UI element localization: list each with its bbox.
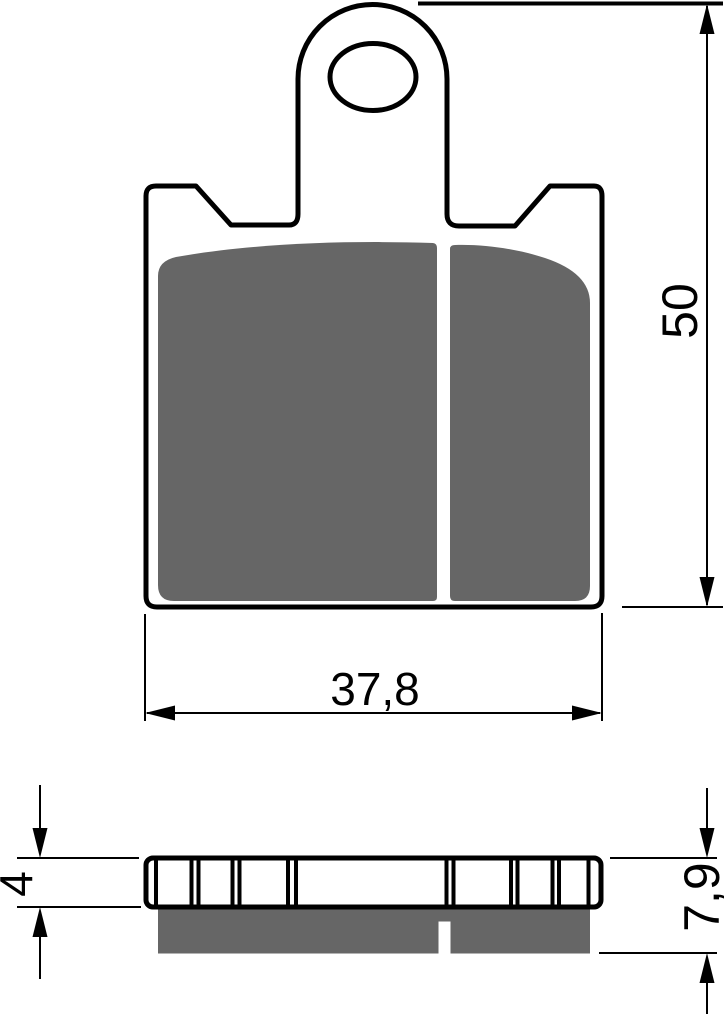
friction-pad-left — [158, 242, 437, 601]
side-friction-slot — [439, 922, 451, 955]
dimension-plate-thickness: 4 — [0, 785, 141, 979]
arrowhead-up — [33, 907, 48, 937]
dimension-label-height: 50 — [652, 283, 708, 339]
side-friction — [158, 909, 590, 954]
dimension-total-thickness: 7,9 — [599, 788, 724, 1014]
dimension-label-total-thickness: 7,9 — [674, 862, 724, 932]
arrowhead-up — [700, 953, 715, 983]
arrowhead-down — [33, 828, 48, 858]
arrowhead-down — [700, 828, 715, 858]
friction-pad-right — [450, 245, 590, 601]
side-view — [146, 858, 601, 954]
dimension-label-width: 37,8 — [330, 663, 420, 715]
front-view — [146, 4, 602, 607]
brake-pad-drawing: 50 37,8 4 7,9 — [0, 0, 724, 1024]
arrowhead-down — [700, 577, 715, 607]
arrowhead-up — [700, 4, 715, 34]
mounting-hole — [330, 44, 416, 111]
technical-drawing-page: 50 37,8 4 7,9 — [0, 0, 724, 1024]
side-backplate — [146, 858, 601, 907]
arrowhead-left — [145, 706, 175, 721]
dimension-width: 37,8 — [145, 613, 602, 721]
dimension-label-plate-thickness: 4 — [0, 871, 42, 897]
arrowhead-right — [572, 706, 602, 721]
